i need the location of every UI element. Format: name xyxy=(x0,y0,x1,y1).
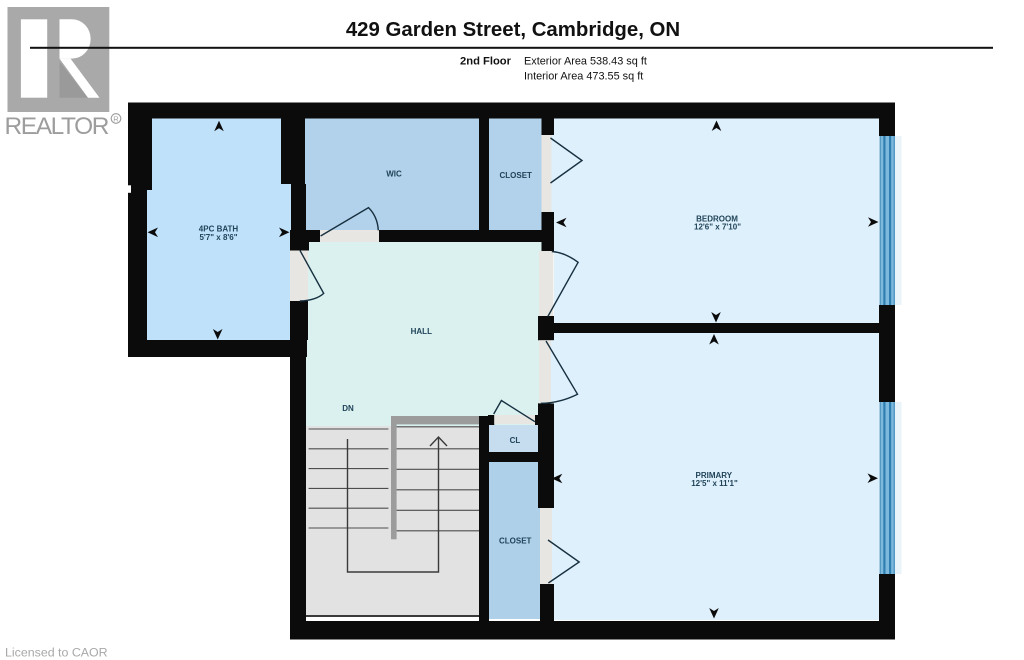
svg-text:2nd Floor: 2nd Floor xyxy=(460,56,512,68)
svg-text:CLOSET: CLOSET xyxy=(499,537,532,546)
svg-text:Exterior Area 538.43 sq ft: Exterior Area 538.43 sq ft xyxy=(524,56,647,68)
svg-text:HALL: HALL xyxy=(411,327,432,336)
svg-text:CL: CL xyxy=(510,436,521,445)
svg-text:REALTOR: REALTOR xyxy=(5,113,110,140)
svg-text:Interior Area 473.55 sq ft: Interior Area 473.55 sq ft xyxy=(524,71,643,83)
svg-text:12'6" x 7'10": 12'6" x 7'10" xyxy=(694,223,741,232)
svg-text:CLOSET: CLOSET xyxy=(499,171,532,180)
svg-text:R: R xyxy=(113,115,119,124)
svg-text:429 Garden Street, Cambridge,: 429 Garden Street, Cambridge, ON xyxy=(346,19,680,41)
svg-text:5'7" x 8'6": 5'7" x 8'6" xyxy=(199,233,237,242)
svg-text:Licensed to CAOR: Licensed to CAOR xyxy=(5,646,108,660)
svg-text:DN: DN xyxy=(342,404,354,413)
svg-text:WIC: WIC xyxy=(386,170,402,179)
svg-text:12'5" x 11'1": 12'5" x 11'1" xyxy=(691,479,738,488)
